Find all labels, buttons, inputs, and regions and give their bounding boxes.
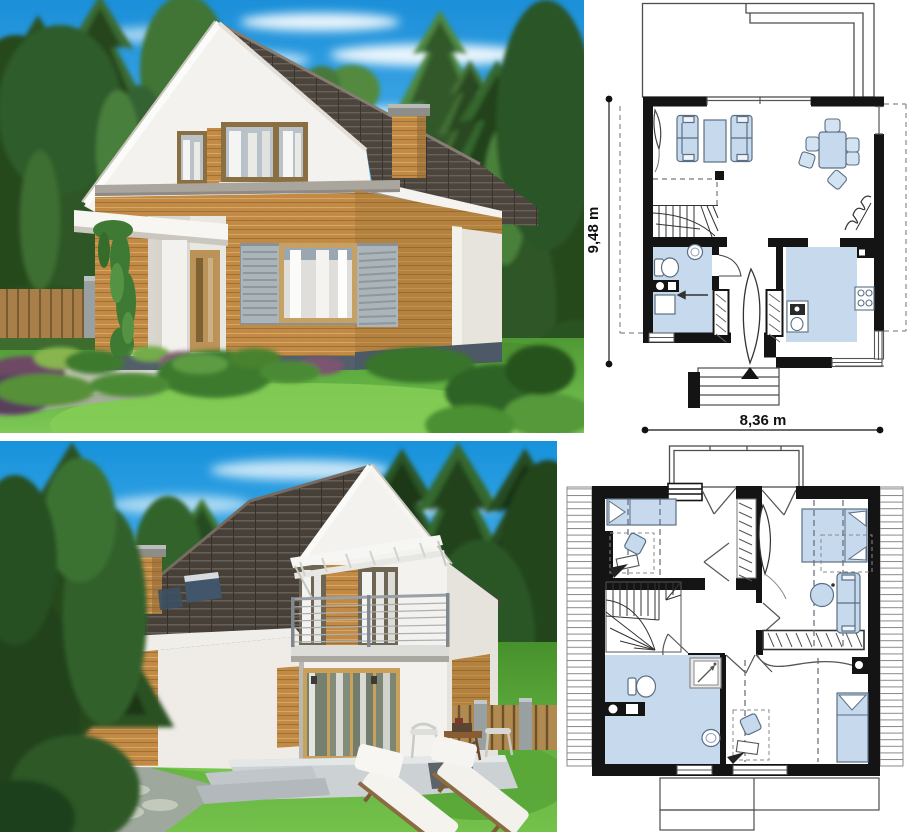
svg-text:9,48 m: 9,48 m [585,207,602,254]
svg-text:8,36 m: 8,36 m [740,412,787,429]
